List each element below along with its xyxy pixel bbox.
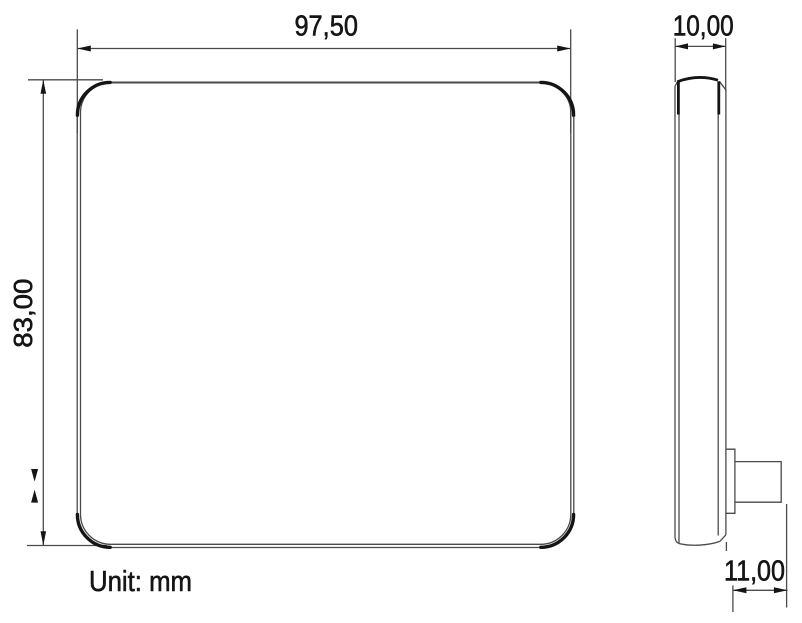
svg-text:Unit: mm: Unit: mm bbox=[89, 566, 192, 598]
svg-text:83,00: 83,00 bbox=[8, 279, 38, 348]
svg-text:10,00: 10,00 bbox=[673, 11, 734, 43]
svg-text:11,00: 11,00 bbox=[724, 555, 785, 587]
svg-text:97,50: 97,50 bbox=[294, 11, 358, 43]
